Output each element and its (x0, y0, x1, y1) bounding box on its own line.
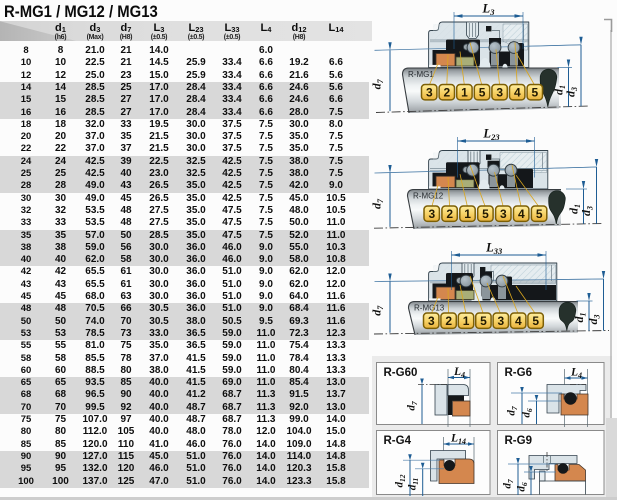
svg-text:3: 3 (496, 86, 503, 100)
svg-text:1: 1 (461, 86, 468, 100)
svg-text:4: 4 (518, 207, 525, 221)
svg-text:5: 5 (532, 314, 539, 328)
svg-text:d3: d3 (586, 315, 602, 325)
svg-text:5: 5 (532, 86, 539, 100)
svg-text:2: 2 (446, 207, 453, 221)
svg-text:R-MG1: R-MG1 (408, 70, 434, 79)
svg-text:R-MG13: R-MG13 (414, 304, 445, 313)
svg-text:3: 3 (426, 86, 433, 100)
svg-text:R-MG12: R-MG12 (413, 192, 444, 201)
svg-text:3: 3 (498, 314, 505, 328)
svg-text:R-G4: R-G4 (384, 435, 412, 447)
svg-text:3: 3 (428, 207, 435, 221)
svg-text:5: 5 (479, 86, 486, 100)
svg-text:3: 3 (500, 207, 507, 221)
svg-text:4: 4 (514, 86, 521, 100)
svg-text:L33: L33 (485, 241, 503, 257)
svg-text:R-G6: R-G6 (505, 367, 532, 379)
svg-text:2: 2 (444, 86, 451, 100)
svg-text:1: 1 (464, 207, 471, 221)
svg-text:2: 2 (445, 314, 452, 328)
svg-text:d7: d7 (370, 78, 386, 89)
svg-text:L23: L23 (482, 127, 500, 143)
svg-text:5: 5 (480, 314, 487, 328)
svg-text:5: 5 (536, 207, 543, 221)
svg-text:d7: d7 (370, 305, 386, 316)
svg-text:L3: L3 (482, 2, 496, 18)
svg-text:1: 1 (463, 314, 470, 328)
svg-text:4: 4 (515, 314, 522, 328)
svg-text:d7: d7 (370, 198, 386, 209)
svg-text:5: 5 (482, 207, 489, 221)
svg-text:R-G60: R-G60 (384, 367, 418, 379)
svg-text:3: 3 (428, 314, 435, 328)
svg-text:R-G9: R-G9 (505, 435, 532, 447)
